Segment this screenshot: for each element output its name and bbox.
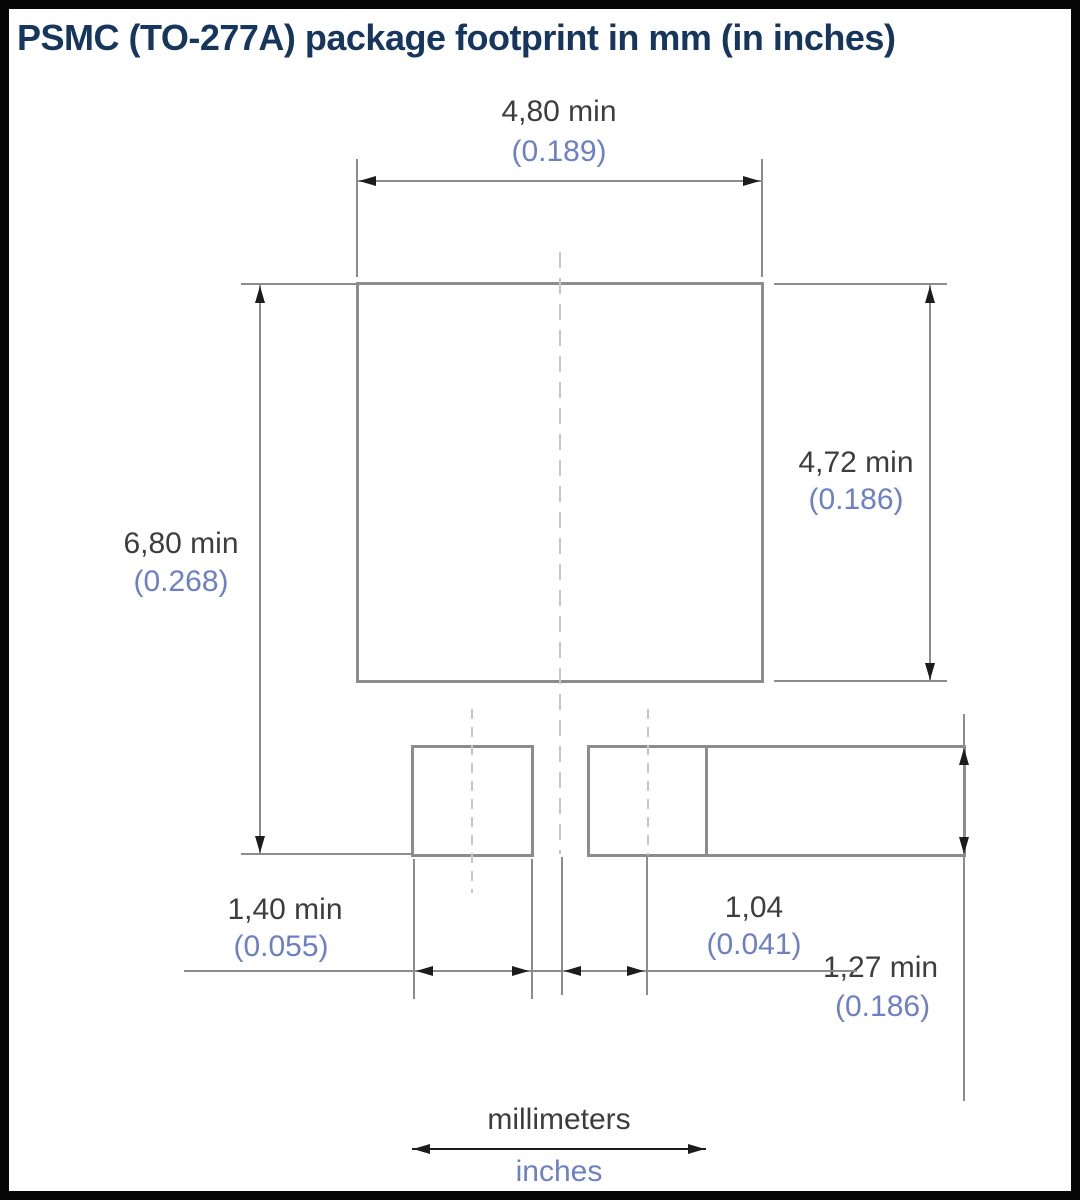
ext-line-right-bottom (774, 680, 947, 682)
ext-line-top-left (356, 159, 358, 277)
arrowhead-up-icon (255, 286, 265, 303)
dim-line-pad-height (963, 714, 965, 1101)
dim-top-inch-label: (0.189) (459, 135, 659, 169)
arrowhead-left-icon (413, 1144, 430, 1154)
dim-top-mm-label: 4,80 min (459, 95, 659, 129)
dim-pad-height-inch-label: (0.186) (835, 990, 930, 1024)
arrowhead-down-icon (255, 836, 265, 853)
dim-small-pad-inch-label: (0.055) (181, 930, 381, 964)
dim-offset-inch-label: (0.041) (654, 928, 854, 962)
arrowhead-down-icon (925, 663, 935, 680)
arrowhead-right-icon (688, 1144, 705, 1154)
arrowhead-up-icon (925, 286, 935, 303)
right-pad-centerline (647, 709, 649, 855)
ext-line-right-pad-center (646, 857, 648, 995)
dim-right-mm-label: 4,72 min (767, 446, 945, 480)
page-title: PSMC (TO-277A) package footprint in mm (… (17, 17, 895, 59)
ext-line-right-top (774, 283, 947, 285)
legend-millimeters-label: millimeters (409, 1103, 709, 1137)
right-pad-divider-line (705, 748, 708, 854)
dim-left-mm-label: 6,80 min (91, 527, 271, 561)
ext-line-left-bottom (241, 853, 411, 855)
arrowhead-left-icon (564, 966, 581, 976)
arrowhead-left-icon (416, 966, 433, 976)
arrowhead-down-icon (959, 837, 969, 854)
ext-line-pad-right-edge (531, 859, 533, 999)
dim-offset-mm-label: 1,04 (654, 891, 854, 925)
dim-line-top (357, 180, 763, 182)
arrowhead-right-icon (512, 966, 529, 976)
ext-line-package-center (561, 857, 563, 995)
legend-scale-line (412, 1148, 706, 1150)
footprint-drawing: PSMC (TO-277A) package footprint in mm (… (0, 0, 1080, 1200)
arrowhead-left-icon (359, 176, 376, 186)
arrowhead-right-icon (743, 176, 760, 186)
dim-right-inch-label: (0.186) (767, 483, 945, 517)
ext-line-top-right (761, 159, 763, 277)
arrowhead-right-icon (627, 966, 644, 976)
legend-inches-label: inches (409, 1155, 709, 1189)
dim-small-pad-mm-label: 1,40 min (185, 893, 385, 927)
arrowhead-up-icon (959, 748, 969, 765)
ext-line-pad-left-edge (413, 859, 415, 999)
package-centerline (559, 252, 561, 854)
right-pad-outline (587, 745, 966, 857)
dim-left-inch-label: (0.268) (91, 565, 271, 599)
left-pad-centerline (471, 709, 473, 893)
